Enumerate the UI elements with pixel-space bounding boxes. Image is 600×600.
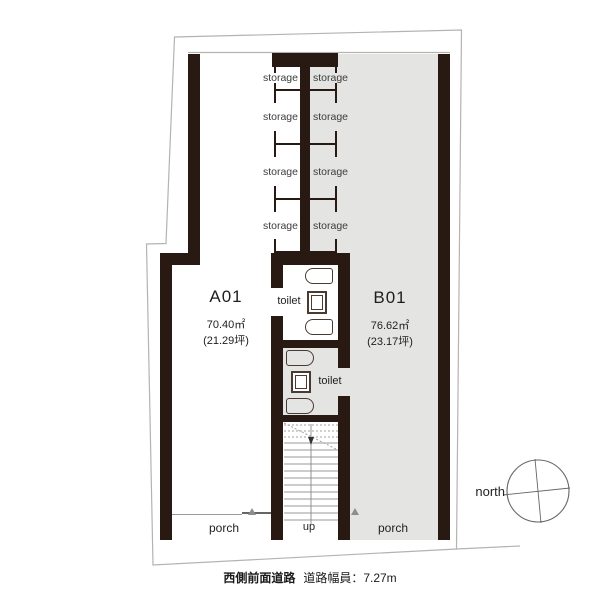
washbasin-icon xyxy=(307,291,327,314)
wall-left-lower xyxy=(160,253,172,540)
door-jamb xyxy=(274,186,276,198)
washbasin-bowl xyxy=(295,375,307,389)
unit-a01-name: A01 xyxy=(186,287,266,307)
storage-cell: storage xyxy=(310,91,337,145)
door-jamb xyxy=(335,200,337,212)
wall-storage-cap xyxy=(272,53,338,67)
wall-left-upper xyxy=(188,54,200,265)
storage-cell: storage xyxy=(274,91,300,145)
unit-a01-area-m2: 70.40㎡ xyxy=(186,316,266,332)
storage-label: storage xyxy=(263,72,298,84)
storage-cell: storage xyxy=(274,67,300,91)
wall-core-right-upper xyxy=(338,265,350,368)
north-label: north xyxy=(445,484,505,499)
porch-label-b01: porch xyxy=(363,521,423,535)
storage-cell: storage xyxy=(274,145,300,200)
door-jamb xyxy=(274,239,276,251)
toilet-label: toilet xyxy=(273,295,305,307)
toilet-bowl-icon xyxy=(286,350,314,366)
storage-label: storage xyxy=(263,166,298,178)
toilet-bowl-icon xyxy=(286,398,314,414)
door-jamb xyxy=(274,200,276,212)
door-jamb xyxy=(274,131,276,143)
door-jamb xyxy=(335,239,337,251)
north-compass-icon xyxy=(503,459,570,523)
road-caption: 西側前面道路道路幅員：7.27m xyxy=(140,569,480,586)
wall-core-left-lower xyxy=(271,316,283,540)
storage-label: storage xyxy=(313,111,348,123)
storage-label: storage xyxy=(263,111,298,123)
unit-b01-area-m2: 76.62㎡ xyxy=(350,317,430,333)
toilet-bowl-icon xyxy=(305,268,333,284)
toilet-bowl-icon xyxy=(305,319,333,335)
storage-cell: storage xyxy=(274,200,300,253)
storage-label: storage xyxy=(313,220,348,232)
door-jamb xyxy=(274,145,276,157)
wall-core-left-upper xyxy=(271,265,283,288)
unit-a01-area-tsubo: (21.29坪) xyxy=(186,332,266,348)
storage-label: storage xyxy=(313,166,348,178)
staircase xyxy=(284,422,338,525)
storage-cell: storage xyxy=(310,145,337,200)
storage-label: storage xyxy=(313,72,348,84)
door-jamb xyxy=(274,91,276,103)
road-edge-line xyxy=(457,546,521,549)
porch-label-a01: porch xyxy=(194,521,254,535)
floor-plan: storage storage storage storage storage … xyxy=(0,0,600,600)
porch-step-marker-icon xyxy=(351,508,359,515)
wall-stair-divider xyxy=(283,415,338,422)
wall-right xyxy=(438,54,450,540)
door-jamb xyxy=(335,186,337,198)
unit-b01-name: B01 xyxy=(350,288,430,308)
road-name: 西側前面道路 xyxy=(223,571,295,585)
washbasin-bowl xyxy=(311,295,323,310)
wall-toilet-block-top xyxy=(271,253,350,265)
unit-b01-area-tsubo: (23.17坪) xyxy=(350,333,430,349)
storage-label: storage xyxy=(263,220,298,232)
toilet-label: toilet xyxy=(313,375,347,387)
wall-toilet-divider xyxy=(283,340,338,348)
door-jamb xyxy=(335,131,337,143)
porch-step-marker-icon xyxy=(248,508,256,515)
storage-cell: storage xyxy=(310,200,337,253)
door-jamb xyxy=(335,145,337,157)
storage-cell: storage xyxy=(310,67,337,91)
washbasin-icon xyxy=(291,371,311,393)
stair-up-label: up xyxy=(289,521,329,533)
road-width: 道路幅員：7.27m xyxy=(303,571,396,585)
wall-core-right-lower xyxy=(338,396,350,540)
wall-storage-center xyxy=(300,67,310,253)
door-jamb xyxy=(335,91,337,103)
